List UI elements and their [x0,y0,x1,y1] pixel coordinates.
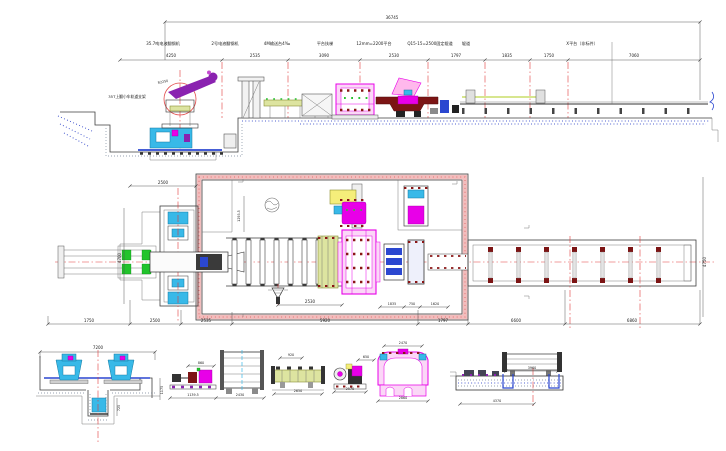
dim-4250: 4250 [166,53,177,58]
plan-subdim-1620: 1620 [431,302,439,306]
platform-tower [238,77,264,118]
label-platform-ladder: 平台扶梯 [317,40,333,46]
braced-frame-unit [302,94,332,116]
d2-dim-top: 860 [198,361,204,365]
detail-runout-side: 3960 4370 [450,352,563,406]
d6-dim-top: 3960 [528,366,536,370]
detail-sections: 7200 1175 [36,341,563,442]
d6-dim-bottom: 4370 [493,399,501,403]
detail-mill-housing: 2470 2860 [376,341,429,403]
plan-dim-5920: 5920 [320,318,331,323]
d5-dim-bottom: 2860 [399,396,407,400]
transfer-shaft [150,252,244,272]
plan-dim-2535: 2535 [201,318,212,323]
label-x-platform: X平台（非标件） [566,40,597,46]
dim-1750: 1750 [544,53,555,58]
mill-layout-drawing: 36745 4250 2535 3090 2530 1797 1835 1750… [0,0,726,451]
plan-dim-vleft: 4700 [117,252,122,263]
elevation-view: 36745 4250 2535 3090 2530 1797 1835 1750… [58,15,718,160]
revision-cloud-mark [710,92,714,110]
d3-dim-top: 920 [288,353,294,357]
label-moving-platform: 12mm=2200平台 [356,40,391,46]
d1-dim-top: 7200 [93,345,104,350]
dim-7060: 7060 [629,53,640,58]
runout-table-plan [468,236,696,330]
tilter-machine: R2250 35T上翻小车轨道支架 [108,71,217,129]
plan-dim-2500: 2500 [150,318,161,323]
d3-dim-bottom: 2650 [294,389,302,393]
pit-upender-car [138,128,236,154]
runout-conveyor-elevation [460,42,714,111]
d1-dim-side: 1175 [160,386,164,394]
shear-beam-unit [376,78,438,117]
plan-dim-6860: 6860 [627,318,638,323]
drain-funnel [268,284,288,306]
plan-dim-1797: 1797 [438,318,449,323]
d4-dim-top: 650 [363,355,369,359]
stamp-logo [265,198,279,212]
cad-drawing-canvas: 36745 4250 2535 3090 2530 1797 1835 1750… [0,0,726,451]
d1-tilter-b [104,354,142,384]
detail-pinch-unit: 650 2570 [332,355,375,394]
circle-label: R2250 [157,79,168,85]
total-dim-text: 36745 [386,15,399,20]
approach-table-plan [318,236,338,288]
plan-view: 1750 2500 2535 5920 1797 6600 6860 2500 … [46,174,715,330]
label-fixed-roller: Q15-15=2500固定辊道 [407,40,452,46]
label-tilter-2: 2号电液翻钢机 [211,40,238,46]
plan-subdim-1835: 1835 [388,302,396,306]
plan-dim-vright: 4750 [702,256,707,267]
plan-dim-6600: 6600 [511,318,522,323]
d4-dim-bottom: 2570 [346,387,354,391]
d2-dim-right: 2430 [236,393,244,397]
plan-subdim-750: 750 [409,302,415,306]
plan-dim-rotated: 1293.5 [237,210,241,222]
upper-pusher-unit [404,186,428,226]
dim-2530: 2530 [389,53,400,58]
tilter-arm [168,76,216,99]
plan-dim-1750: 1750 [84,318,95,323]
label-tilter-1: 35.7吨电液翻钢机 [146,40,180,46]
plan-dim-center: 2530 [305,299,316,304]
dim-2535: 2535 [250,53,261,58]
manipulator-assembly [330,184,368,228]
mill-stand-elevation [332,84,378,119]
detail-roller-table: 920 2650 [271,353,325,396]
detail-drive-train: 860 1139.5 2430 [168,350,265,400]
dim-1797: 1797 [451,53,462,58]
dim-1835: 1835 [502,53,513,58]
plan-dim-topleft: 2500 [158,180,169,185]
detail-pit-section: 7200 1175 [36,345,164,442]
d5-dim-top: 2470 [399,341,407,345]
d1-dim-sub: 725 [117,405,121,411]
d1-pit-device [92,398,106,412]
label-conveyor: 4M输送台4‰ [264,40,291,46]
mill-stand-plan [338,230,380,294]
section-marks [238,179,529,317]
elevation-dim-chain: 4250 2535 3090 2530 1797 1835 1750 7060 [118,53,701,62]
dim-3090: 3090 [319,53,330,58]
elevation-equipment-labels: 35.7吨电液翻钢机 2号电液翻钢机 4M输送台4‰ 平台扶梯 12mm=220… [146,40,598,46]
left-equipment-label: 35T上翻小车轨道支架 [108,94,146,99]
d1-tilter-a [50,354,88,384]
label-roller: 辊道 [462,40,470,46]
d2-dim-left: 1139.5 [187,393,199,397]
